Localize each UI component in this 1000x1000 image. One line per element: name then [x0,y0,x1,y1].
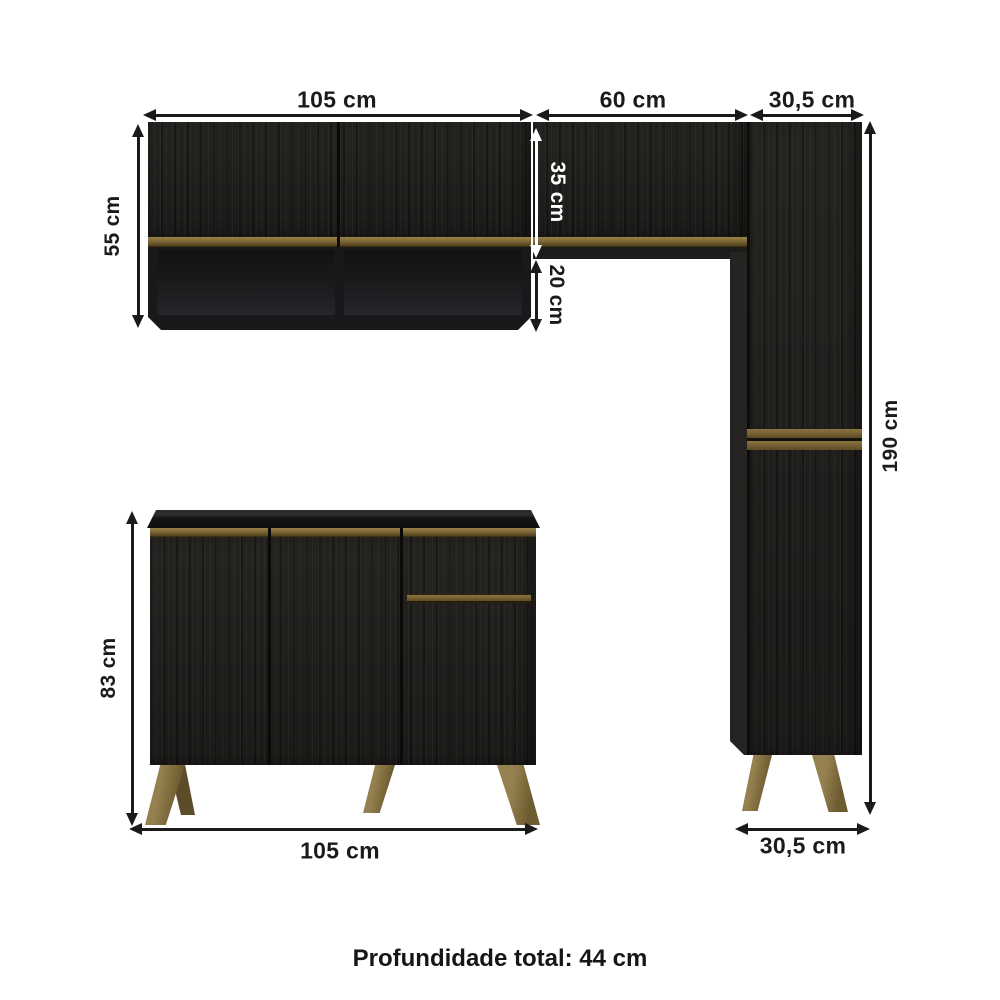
wall-cabinet-left-trim-gap [337,237,340,247]
tall-cabinet-side-panel [730,252,747,755]
base-trim-gap-2 [400,528,403,537]
dim-arrow-open-shelf-height [530,260,543,332]
base-cabinet-drawer-trim [407,594,531,603]
tall-cabinet [730,122,862,813]
wall-cabinet-middle-gold-trim [533,237,747,247]
total-depth-label: Profundidade total: 44 cm [353,945,648,973]
base-trim-gap-1 [268,528,271,537]
base-cabinet-door-divider-1 [268,537,271,765]
dim-arrow-upper-door-height [530,128,543,258]
dim-label-tall-cabinet-width: 30,5 cm [760,833,847,860]
wall-cabinet-left-open-shelf [148,247,531,330]
base-cabinet-countertop [147,510,540,528]
base-cabinet-door-divider-2 [400,537,403,765]
dim-arrow-tall-cabinet-height [864,121,877,815]
base-cabinet [147,507,540,825]
tall-cabinet-leg-left [742,755,772,811]
tall-cabinet-leg-right [812,755,848,812]
wall-cabinet-left-door-divider [337,122,340,237]
dim-label-base-cabinet-width: 105 cm [300,838,380,865]
tall-cabinet-gold-trim-upper [747,429,862,438]
base-cabinet-leg-right [497,765,540,825]
wall-cabinet-left [148,122,531,330]
kitchen-cabinet-dimension-diagram: 105 cm 60 cm 30,5 cm 55 cm 35 cm 20 cm 1… [0,0,1000,1000]
shelf-opening-right [344,250,522,315]
dim-arrow-base-cabinet-height [126,511,139,826]
dim-label-base-cabinet-height: 83 cm [97,637,121,698]
base-cabinet-gold-trim [150,528,536,537]
dim-label-upper-right-width: 30,5 cm [769,87,856,114]
base-cabinet-body [150,528,536,765]
dim-arrow-upper-cabinet-height [132,124,145,328]
dim-label-upper-left-width: 105 cm [297,87,377,114]
shelf-opening-left [157,250,335,315]
wall-cabinet-middle-bottom-band [533,247,747,259]
base-cabinet-fronts [150,537,536,765]
base-cabinet-leg-middle [363,765,395,813]
dim-label-upper-door-height: 35 cm [545,161,569,222]
tall-cabinet-gold-trim-lower [747,441,862,450]
dim-label-upper-middle-width: 60 cm [600,87,667,114]
dim-label-tall-cabinet-height: 190 cm [879,399,903,472]
dim-label-upper-cabinet-height: 55 cm [101,195,125,256]
dim-label-open-shelf-height: 20 cm [544,264,568,325]
dim-arrow-base-cabinet-width [129,823,538,836]
